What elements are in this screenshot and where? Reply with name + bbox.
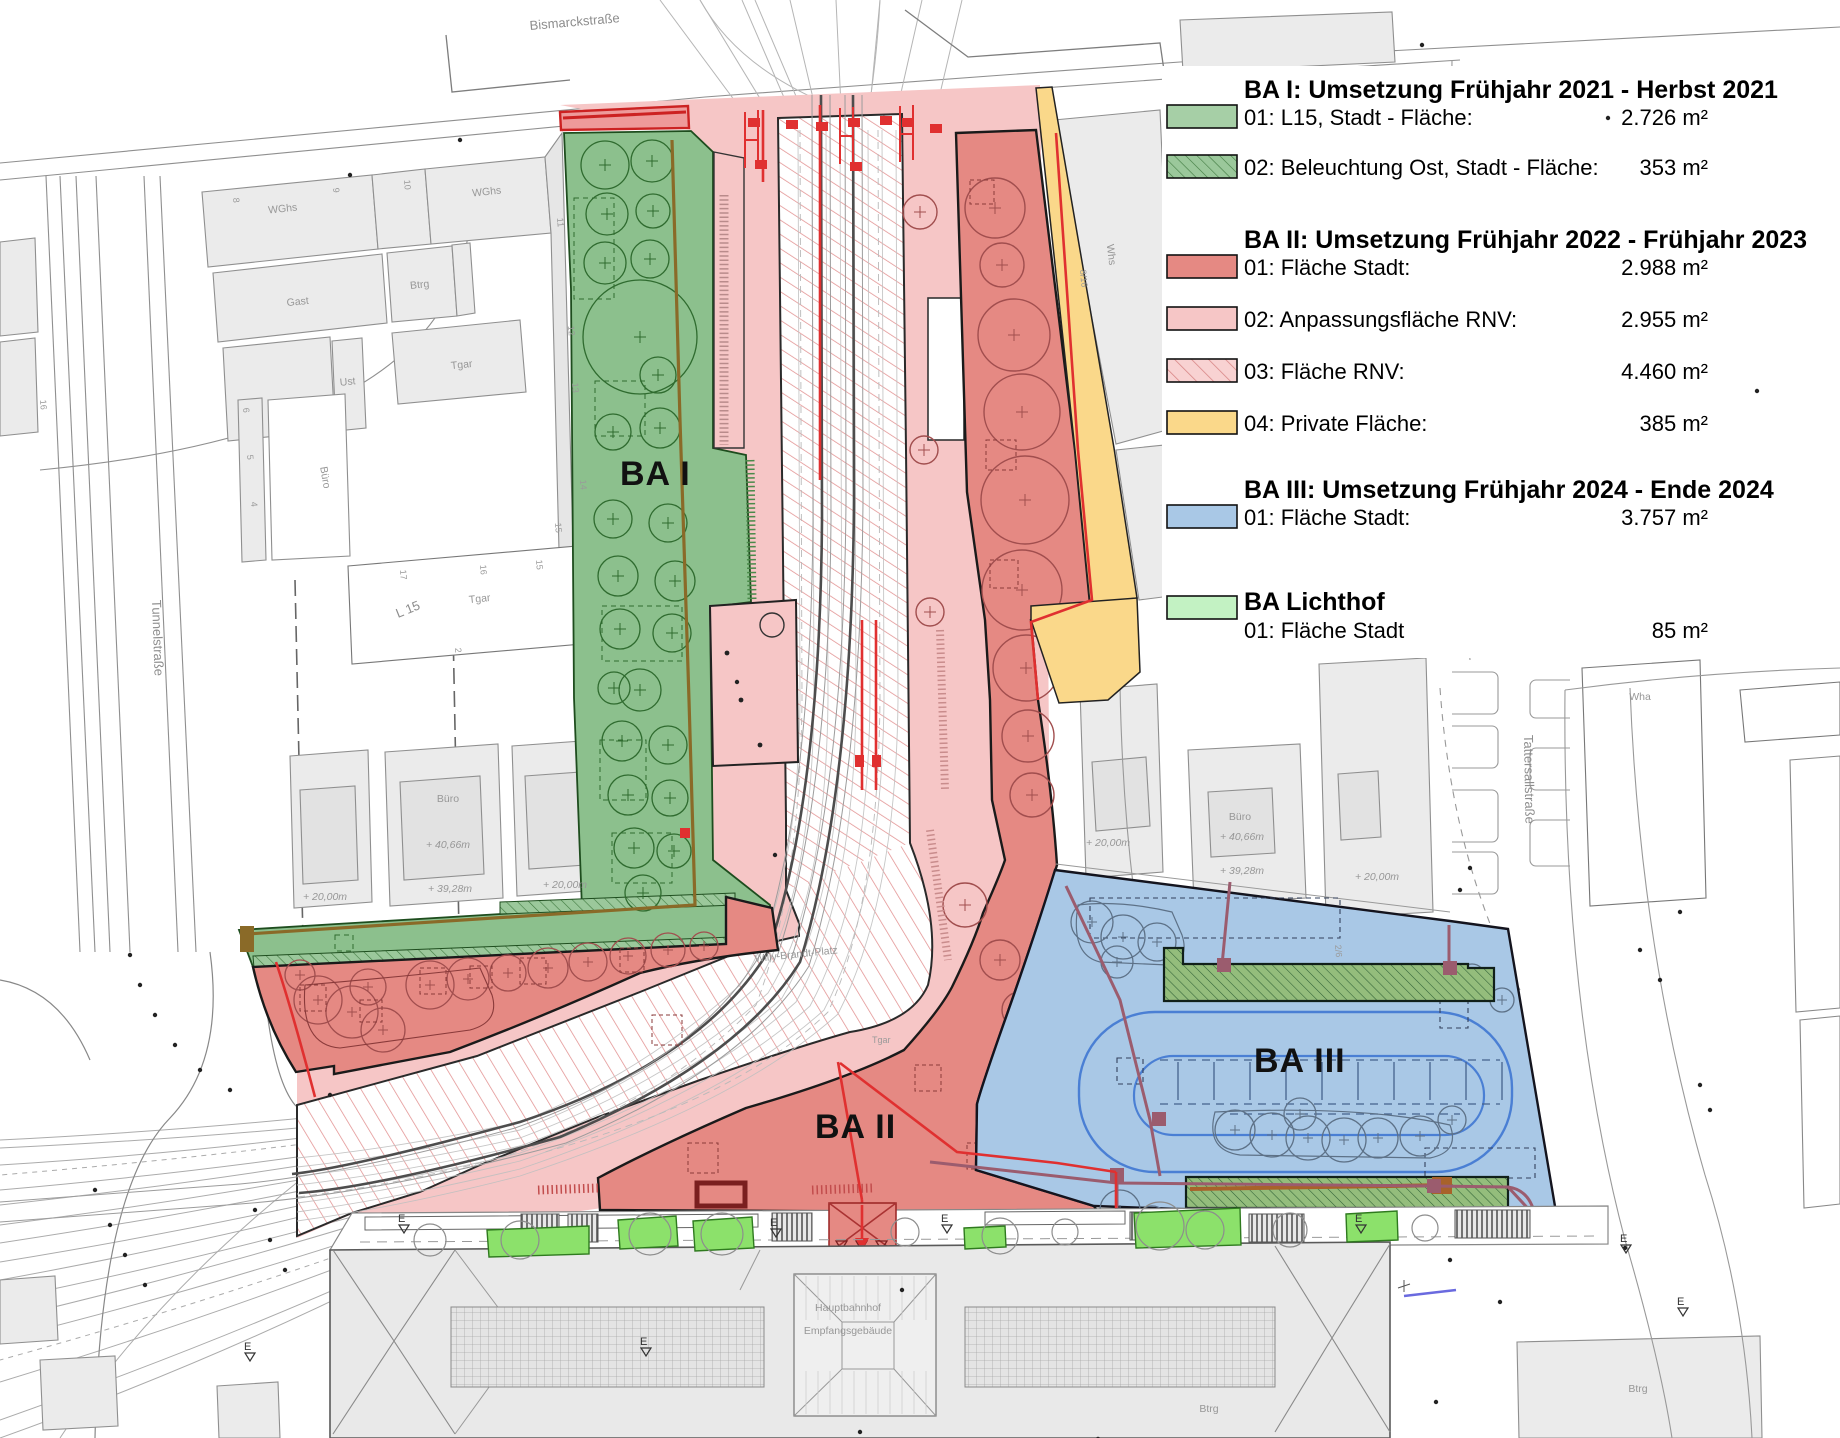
svg-text:15: 15 xyxy=(553,522,564,533)
svg-text:12: 12 xyxy=(566,325,577,336)
svg-text:Büro: Büro xyxy=(1229,811,1251,823)
svg-text:2/6: 2/6 xyxy=(1333,944,1344,957)
svg-text:13: 13 xyxy=(570,382,581,393)
svg-text:Btrg: Btrg xyxy=(1199,1403,1218,1415)
svg-text:11: 11 xyxy=(555,217,566,227)
svg-text:Gast: Gast xyxy=(286,295,309,309)
svg-text:2.988 m²: 2.988 m² xyxy=(1621,255,1708,280)
svg-text:+ 39,28m: + 39,28m xyxy=(1220,865,1264,877)
svg-text:10: 10 xyxy=(402,179,413,190)
svg-text:385 m²: 385 m² xyxy=(1640,411,1708,436)
svg-text:BA II: Umsetzung Frühjahr 2022: BA II: Umsetzung Frühjahr 2022 - Frühjah… xyxy=(1244,226,1807,254)
svg-text:Tgar: Tgar xyxy=(468,592,491,606)
svg-text:01: Fläche Stadt:: 01: Fläche Stadt: xyxy=(1244,255,1410,280)
svg-text:8: 8 xyxy=(231,197,241,203)
svg-text:BA III: BA III xyxy=(1254,1042,1346,1080)
svg-text:85 m²: 85 m² xyxy=(1652,618,1708,643)
svg-text:+ 20,00m: + 20,00m xyxy=(1355,871,1399,883)
svg-text:8/16: 8/16 xyxy=(1078,269,1089,287)
svg-text:Empfangsgebäude: Empfangsgebäude xyxy=(804,1325,892,1337)
svg-text:01: Fläche Stadt: 01: Fläche Stadt xyxy=(1244,618,1404,643)
svg-text:Tgar: Tgar xyxy=(450,358,473,372)
svg-text:E: E xyxy=(941,1213,948,1225)
svg-text:2.955 m²: 2.955 m² xyxy=(1621,307,1708,332)
svg-text:E: E xyxy=(1355,1213,1362,1225)
svg-text:2: 2 xyxy=(453,647,463,653)
svg-text:Büro: Büro xyxy=(437,793,459,805)
svg-text:E: E xyxy=(398,1213,405,1225)
svg-text:03: Fläche RNV:: 03: Fläche RNV: xyxy=(1244,359,1405,384)
svg-text:BA Lichthof: BA Lichthof xyxy=(1244,588,1385,616)
svg-text:BA III: Umsetzung Frühjahr 202: BA III: Umsetzung Frühjahr 2024 - Ende 2… xyxy=(1244,476,1774,504)
svg-text:4: 4 xyxy=(249,501,259,507)
svg-text:5: 5 xyxy=(245,454,255,460)
svg-text:Hauptbahnhof: Hauptbahnhof xyxy=(815,1302,881,1314)
svg-text:+ 20,00m: + 20,00m xyxy=(1086,837,1130,849)
svg-text:E: E xyxy=(770,1217,777,1229)
svg-text:Ust: Ust xyxy=(339,375,356,389)
svg-text:BA II: BA II xyxy=(815,1108,896,1146)
svg-text:Tattersallstraße: Tattersallstraße xyxy=(1521,735,1538,824)
svg-text:14: 14 xyxy=(578,479,589,490)
svg-text:16: 16 xyxy=(38,399,49,410)
svg-text:02: Anpassungsfläche RNV:: 02: Anpassungsfläche RNV: xyxy=(1244,307,1517,332)
svg-text:E: E xyxy=(244,1341,251,1353)
svg-text:Whs: Whs xyxy=(1104,243,1118,265)
svg-text:02: Beleuchtung Ost, Stadt - F: 02: Beleuchtung Ost, Stadt - Fläche: xyxy=(1244,155,1599,180)
svg-text:17: 17 xyxy=(398,569,409,580)
svg-text:353 m²: 353 m² xyxy=(1640,155,1708,180)
svg-text:BA I: BA I xyxy=(620,455,691,493)
svg-text:6: 6 xyxy=(241,407,251,413)
svg-text:BA I: Umsetzung Frühjahr 2021: BA I: Umsetzung Frühjahr 2021 - Herbst 2… xyxy=(1244,76,1778,104)
svg-text:01: L15, Stadt - Fläche:: 01: L15, Stadt - Fläche: xyxy=(1244,105,1473,130)
svg-text:+ 40,66m: + 40,66m xyxy=(426,839,470,851)
svg-text:+ 20,00m: + 20,00m xyxy=(303,891,347,903)
svg-text:E: E xyxy=(640,1336,647,1348)
svg-text:9: 9 xyxy=(331,187,341,193)
svg-text:+ 39,28m: + 39,28m xyxy=(428,883,472,895)
svg-text:Tunnelstraße: Tunnelstraße xyxy=(149,600,167,677)
svg-text:2.726 m²: 2.726 m² xyxy=(1621,105,1708,130)
svg-text:Wha: Wha xyxy=(1629,691,1651,703)
svg-text:16: 16 xyxy=(478,564,489,575)
svg-text:4.460 m²: 4.460 m² xyxy=(1621,359,1708,384)
svg-text:E: E xyxy=(1620,1233,1627,1245)
svg-text:Tgar: Tgar xyxy=(872,1035,891,1045)
svg-text:04: Private Fläche:: 04: Private Fläche: xyxy=(1244,411,1427,436)
svg-text:3.757 m²: 3.757 m² xyxy=(1621,505,1708,530)
svg-text:Btrg: Btrg xyxy=(1628,1383,1647,1395)
svg-text:E: E xyxy=(1677,1296,1684,1308)
svg-text:15: 15 xyxy=(534,559,545,570)
svg-text:Btrg: Btrg xyxy=(409,278,430,292)
svg-text:+ 40,66m: + 40,66m xyxy=(1220,831,1264,843)
svg-text:01: Fläche Stadt:: 01: Fläche Stadt: xyxy=(1244,505,1410,530)
svg-text:+ 20,00m: + 20,00m xyxy=(543,879,587,891)
